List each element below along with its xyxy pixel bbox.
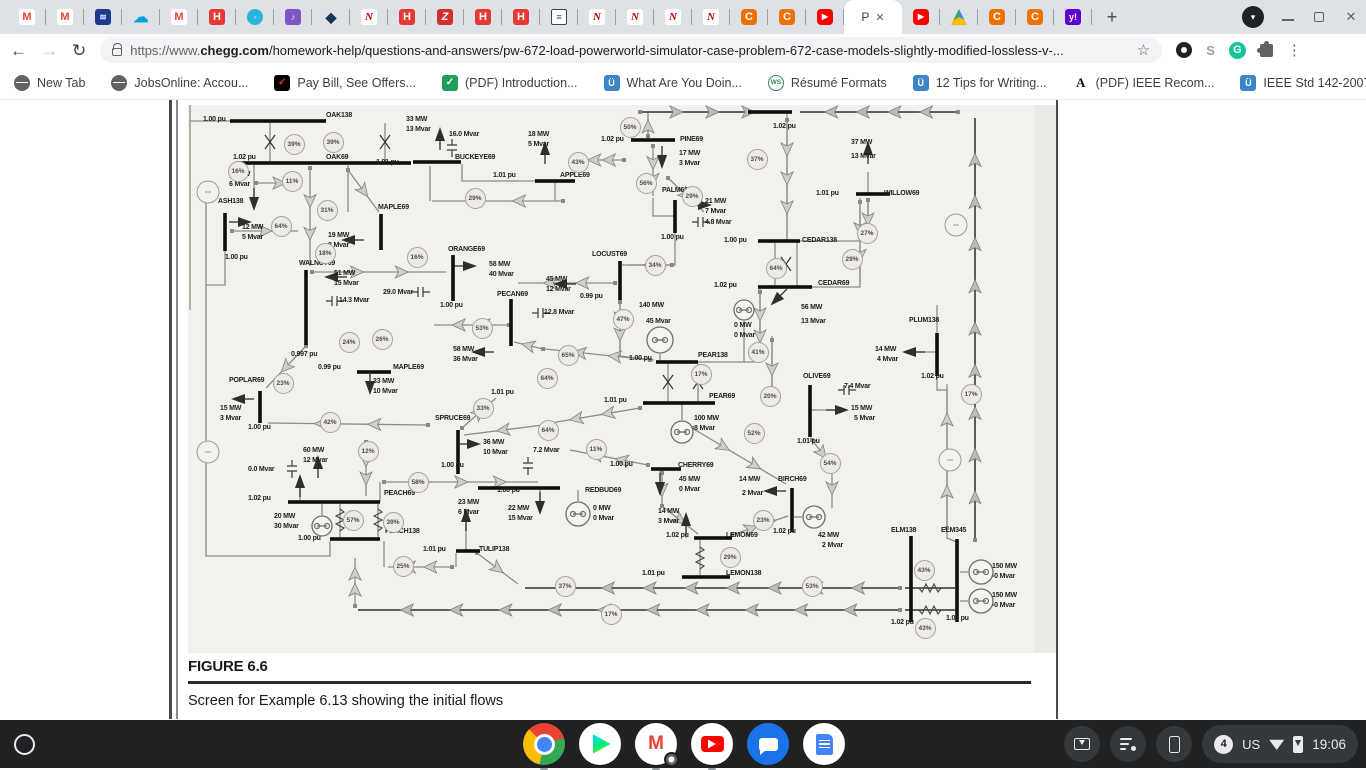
bookmark-label: 12 Tips for Writing... <box>936 76 1047 90</box>
reload-button[interactable]: ↻ <box>72 42 86 59</box>
minimize-button[interactable] <box>1282 13 1294 21</box>
tab-niu[interactable]: N <box>692 0 730 34</box>
tab-hred[interactable]: H <box>388 0 426 34</box>
page-border-right <box>1056 100 1058 719</box>
back-button[interactable]: ← <box>10 42 27 59</box>
bookmark-label: IEEE Std 142-2007... <box>1263 76 1366 90</box>
bookmark-star-icon[interactable]: ☆ <box>1137 41 1150 59</box>
tab-youtube[interactable]: ▶ <box>902 0 940 34</box>
niu-favicon: N <box>665 9 681 25</box>
cloud-favicon: ☁ <box>133 9 149 25</box>
drive-favicon <box>951 9 967 25</box>
figure-caption-block: FIGURE 6.6 Screen for Example 6.13 showi… <box>188 658 1031 709</box>
tab-gmail[interactable]: M <box>46 0 84 34</box>
bookmark-item[interactable]: ✓(PDF) Introduction... <box>442 75 578 91</box>
shelf-app-play-store[interactable] <box>579 723 621 765</box>
niu-favicon: N <box>361 9 377 25</box>
extension-icon-dark[interactable] <box>1176 42 1192 58</box>
tab-gmail[interactable]: M <box>8 0 46 34</box>
diamond-favicon: ◆ <box>323 9 339 25</box>
bookmark-item[interactable]: ✓Pay Bill, See Offers... <box>274 75 416 91</box>
bookmark-label: What Are You Doin... <box>627 76 742 90</box>
scribble-favicon: ≋ <box>95 9 111 25</box>
clock: 19:06 <box>1312 737 1346 752</box>
tabs-group-left: MM≋☁MH◦♪◆NHZHH≡NNNNCC▶ <box>8 0 844 34</box>
window-controls: ▾ ✕ <box>1242 0 1358 34</box>
youtube-favicon: ▶ <box>817 9 833 25</box>
extensions-puzzle-icon[interactable] <box>1260 44 1273 57</box>
tab-niu[interactable]: N <box>350 0 388 34</box>
bookmark-label: (PDF) Introduction... <box>465 76 578 90</box>
bookmarks-bar: New TabJobsOnline: Accou...✓Pay Bill, Se… <box>0 66 1366 100</box>
tab-diamond[interactable]: ◆ <box>312 0 350 34</box>
chegg-favicon: C <box>779 9 795 25</box>
tab-youtube[interactable]: ▶ <box>806 0 844 34</box>
profile-menu-icon[interactable]: ▾ <box>1242 6 1264 28</box>
niu-favicon: N <box>627 9 643 25</box>
niu-favicon: N <box>589 9 605 25</box>
chegg-favicon: C <box>989 9 1005 25</box>
hred-favicon: H <box>513 9 529 25</box>
chromeos-shelf: M 4 US 19:06 <box>0 720 1366 768</box>
tab-gmail[interactable]: M <box>160 0 198 34</box>
bookmark-item[interactable]: ÜIEEE Std 142-2007... <box>1240 75 1366 91</box>
tab-drive[interactable] <box>940 0 978 34</box>
tab-hred[interactable]: H <box>502 0 540 34</box>
tab-cloud[interactable]: ☁ <box>122 0 160 34</box>
tab-chegg[interactable]: C <box>978 0 1016 34</box>
bookmark-label: (PDF) IEEE Recom... <box>1096 76 1215 90</box>
chegg-favicon: C <box>1027 9 1043 25</box>
shelf-app-gmail[interactable]: M <box>635 723 677 765</box>
shelf-apps: M <box>523 723 845 765</box>
figure-caption: Screen for Example 6.13 showing the init… <box>188 693 1031 709</box>
shelf-app-messages[interactable] <box>747 723 789 765</box>
lock-icon <box>112 48 122 56</box>
purplep-favicon: ♪ <box>285 9 301 25</box>
browser-toolbar: ← → ↻ https://www.chegg.com/homework-hel… <box>0 34 1366 66</box>
aletter-icon: A <box>1073 75 1089 91</box>
niu-favicon: N <box>703 9 719 25</box>
page-border-left2 <box>176 100 178 719</box>
tab-niu[interactable]: N <box>616 0 654 34</box>
globe-icon <box>14 75 30 91</box>
bookmark-label: New Tab <box>37 76 85 90</box>
tab-niu[interactable]: N <box>654 0 692 34</box>
address-bar[interactable]: https://www.chegg.com/homework-help/ques… <box>100 37 1162 63</box>
bookmark-item[interactable]: A(PDF) IEEE Recom... <box>1073 75 1215 91</box>
tab-scribble[interactable]: ≋ <box>84 0 122 34</box>
page-border-left <box>169 100 172 719</box>
grammarly-icon[interactable]: G <box>1229 42 1246 59</box>
screen-capture-icon[interactable] <box>1064 726 1100 762</box>
new-tab-button[interactable]: + <box>1098 3 1126 31</box>
gmail-favicon: M <box>19 9 35 25</box>
keyboard-language: US <box>1242 737 1260 752</box>
hred-favicon: H <box>209 9 225 25</box>
media-playlist-icon[interactable] <box>1110 726 1146 762</box>
zred-favicon: Z <box>437 9 453 25</box>
bookmark-item[interactable]: Ü12 Tips for Writing... <box>913 75 1047 91</box>
close-window-button[interactable]: ✕ <box>1344 10 1358 24</box>
paybill-icon: ✓ <box>274 75 290 91</box>
yahoo-favicon: y! <box>1065 9 1081 25</box>
youtube-favicon: ▶ <box>913 9 929 25</box>
url-text: https://www.chegg.com/homework-help/ques… <box>130 43 1129 58</box>
browser-menu-icon[interactable]: ⋮ <box>1287 41 1302 59</box>
tab-niu[interactable]: N <box>578 0 616 34</box>
hred-favicon: H <box>475 9 491 25</box>
notification-badge: 4 <box>1214 735 1233 754</box>
forward-button[interactable]: → <box>41 42 58 59</box>
launcher-icon[interactable] <box>6 726 42 762</box>
bookmark-label: JobsOnline: Accou... <box>134 76 248 90</box>
doc-favicon: ≡ <box>551 9 567 25</box>
owl-icon: Ü <box>913 75 929 91</box>
shelf-app-youtube[interactable] <box>691 723 733 765</box>
tab-doc[interactable]: ≡ <box>540 0 578 34</box>
extension-icon-s[interactable]: S <box>1206 43 1215 58</box>
figure-margin-band <box>1034 105 1056 653</box>
tab-hred[interactable]: H <box>464 0 502 34</box>
tab-zred[interactable]: Z <box>426 0 464 34</box>
figure-rule <box>188 681 1031 684</box>
tab-strip: MM≋☁MH◦♪◆NHZHH≡NNNNCC▶ P ✕ ▶CCy! + ▾ ✕ <box>0 0 1366 34</box>
owl-icon: Ü <box>604 75 620 91</box>
system-tray[interactable]: 4 US 19:06 <box>1202 725 1358 763</box>
phone-hub-icon[interactable] <box>1156 726 1192 762</box>
wifi-icon <box>1269 738 1284 750</box>
battery-icon <box>1293 736 1303 753</box>
globe-icon <box>111 75 127 91</box>
bookmark-item[interactable]: ÜWhat Are You Doin... <box>604 75 742 91</box>
tabs-group-right: ▶CCy! <box>902 0 1092 34</box>
bookmark-item[interactable]: New Tab <box>14 75 85 91</box>
tab-yahoo[interactable]: y! <box>1054 0 1092 34</box>
tab-chegg[interactable]: C <box>1016 0 1054 34</box>
greencheck-icon: ✓ <box>442 75 458 91</box>
bookmark-item[interactable]: JobsOnline: Accou... <box>111 75 248 91</box>
active-tab[interactable]: P ✕ <box>844 0 902 34</box>
gmail-favicon: M <box>171 9 187 25</box>
figure-label: FIGURE 6.6 <box>188 658 1031 675</box>
shelf-app-chrome[interactable] <box>523 723 565 765</box>
active-tab-label: P <box>861 10 869 24</box>
figure-image <box>188 105 1034 653</box>
restore-button[interactable] <box>1314 12 1324 22</box>
page-content: 1.00 puOAK13833 MW13 Mvar16.0 Mvar18 MW5… <box>0 100 1366 720</box>
tab-close-icon[interactable]: ✕ <box>875 11 884 24</box>
swirl-favicon: ◦ <box>247 9 263 25</box>
bookmark-item[interactable]: WSRésumé Formats <box>768 75 887 91</box>
chegg-favicon: C <box>741 9 757 25</box>
hred-favicon: H <box>399 9 415 25</box>
tab-hred[interactable]: H <box>198 0 236 34</box>
shelf-app-docs[interactable] <box>803 723 845 765</box>
status-tray: 4 US 19:06 <box>1064 725 1358 763</box>
owl-icon: Ü <box>1240 75 1256 91</box>
bookmark-label: Résumé Formats <box>791 76 887 90</box>
gmail-favicon: M <box>57 9 73 25</box>
ws-icon: WS <box>768 75 784 91</box>
tab-purplep[interactable]: ♪ <box>274 0 312 34</box>
tab-chegg[interactable]: C <box>730 0 768 34</box>
tab-swirl[interactable]: ◦ <box>236 0 274 34</box>
bookmark-label: Pay Bill, See Offers... <box>297 76 416 90</box>
tab-chegg[interactable]: C <box>768 0 806 34</box>
